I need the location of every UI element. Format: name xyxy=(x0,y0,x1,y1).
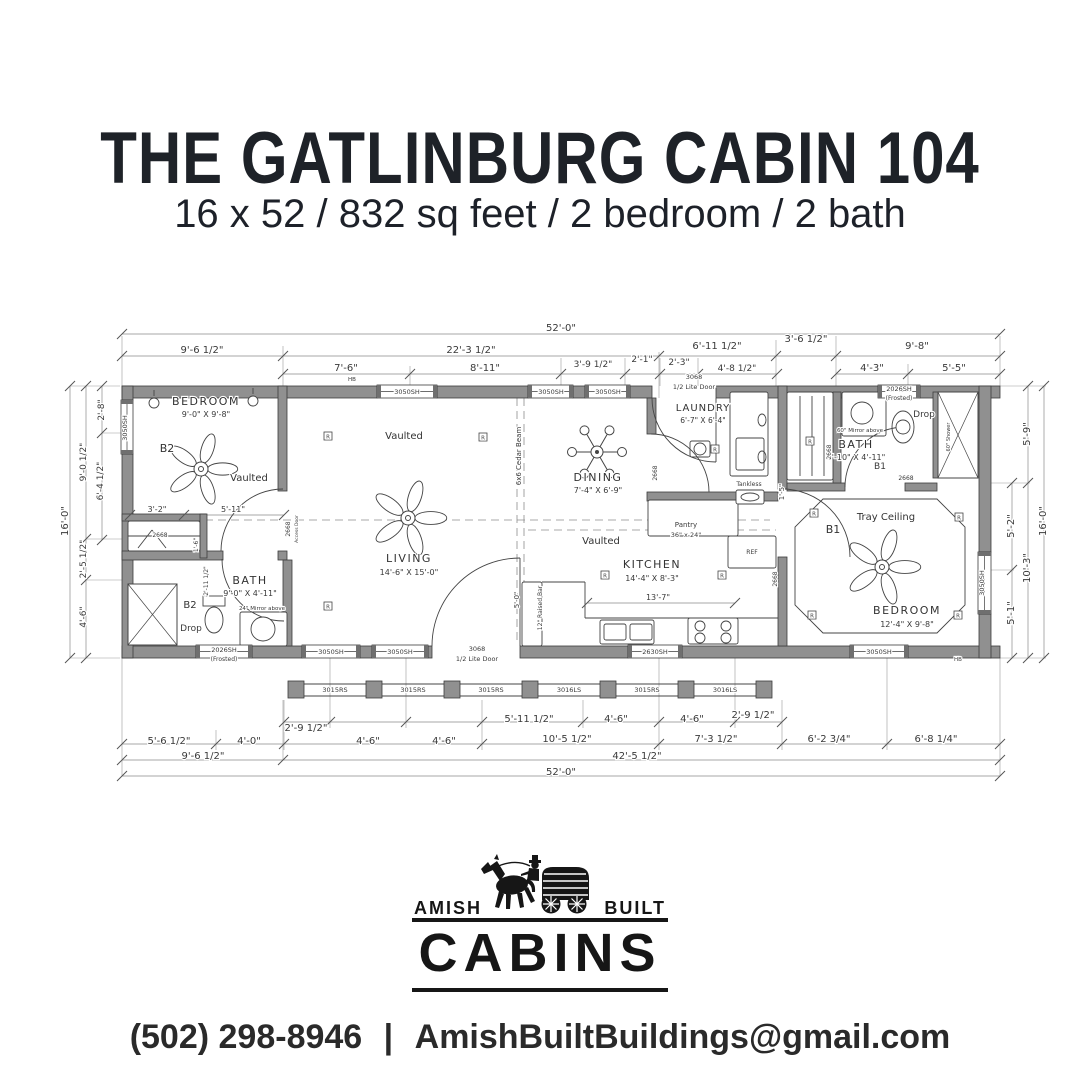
plan-label: 9'-0" X 9'-8" xyxy=(182,410,230,419)
logo-rule-bottom xyxy=(412,988,668,992)
plan-label: 2668 xyxy=(826,444,833,459)
plan-label: Pantry xyxy=(675,521,697,529)
fixture-circle xyxy=(851,402,873,424)
plan-label: 4'-0" xyxy=(237,736,261,747)
plan-label: 3050SH xyxy=(866,648,892,656)
plan-label: 4'-6" xyxy=(432,736,456,747)
plan-label: 6x6 Cedar Beam xyxy=(515,427,523,486)
plan-label: 1/2 Lite Door xyxy=(673,383,716,391)
wall xyxy=(520,646,628,658)
window-jamb xyxy=(628,645,632,658)
plan-label: 3050SH xyxy=(978,570,986,596)
page: THE GATLINBURG CABIN 104 16 x 52 / 832 s… xyxy=(0,0,1080,1080)
door-swing xyxy=(432,558,520,646)
plan-label: 52'-0" xyxy=(546,323,576,334)
plan-label: LAUNDRY xyxy=(676,403,731,414)
plan-label: 9'-0 1/2" xyxy=(79,443,89,482)
wall xyxy=(278,386,287,491)
plan-label: 2'-1" xyxy=(631,355,652,365)
window-jamb xyxy=(978,552,991,556)
plan-label: 5'-9" xyxy=(1022,422,1033,446)
plan-label: Drop xyxy=(913,410,935,420)
fixture xyxy=(736,438,764,470)
plan-label: 4'-6" xyxy=(79,606,89,627)
plan-label: 6'-2 3/4" xyxy=(808,734,851,745)
plan-label: 3015RS xyxy=(478,686,503,694)
plan-label: BATH xyxy=(232,574,267,587)
plan-label: 2'-8" xyxy=(97,399,107,420)
porch-post xyxy=(366,681,382,698)
plan-label: 3050SH xyxy=(121,415,129,441)
fixture-circle xyxy=(695,621,705,631)
plan-label: 2668 xyxy=(152,532,167,539)
fixture-circle xyxy=(721,621,731,631)
fixture-circle xyxy=(896,420,910,434)
plan-label: 2668 xyxy=(285,521,292,536)
window-jamb xyxy=(356,645,360,658)
plan-label: 5'-11" xyxy=(221,505,245,514)
logo-cabins: CABINS xyxy=(412,922,668,984)
plan-label: BATH xyxy=(838,438,873,451)
plan-label: 14'-4" X 8'-3" xyxy=(625,574,679,583)
plan-label: Vaulted xyxy=(230,473,268,484)
plan-label: 3068 xyxy=(469,645,486,653)
window-jamb xyxy=(377,385,381,398)
porch-post xyxy=(756,681,772,698)
plan-label: 16'-0" xyxy=(60,506,71,536)
toilet-bowl xyxy=(205,607,223,633)
logo-amish: AMISH xyxy=(414,898,482,919)
plan-label: 6'-11 1/2" xyxy=(692,341,741,352)
plan-label: B2 xyxy=(160,442,175,455)
window-jamb xyxy=(121,450,133,454)
plan-label: 3016LS xyxy=(713,686,737,694)
contact-phone: (502) 298-8946 xyxy=(130,1018,363,1056)
fixture-circle xyxy=(721,633,731,643)
plan-label: REF xyxy=(746,549,758,556)
plan-label: 7'-4" X 6'-9" xyxy=(574,486,622,495)
plan-label: 3'-6 1/2" xyxy=(785,334,828,345)
wall xyxy=(122,386,377,398)
plan-label: R xyxy=(326,434,330,440)
plan-label: B1 xyxy=(874,462,886,472)
plan-label: 22'-3 1/2" xyxy=(446,345,495,356)
fixture xyxy=(630,624,652,640)
plan-label: 2'-3" xyxy=(668,358,689,368)
plan-label: 3050SH xyxy=(538,388,564,396)
contact-line: (502) 298-8946 | AmishBuiltBuildings@gma… xyxy=(0,1018,1080,1057)
plan-label: 60" Mirror above xyxy=(837,428,884,434)
wall xyxy=(979,614,991,658)
plan-label: R xyxy=(957,515,961,521)
plan-label: 3068 xyxy=(686,373,703,381)
wall xyxy=(437,386,528,398)
wall xyxy=(252,646,302,658)
toilet-tank xyxy=(203,596,225,606)
plan-label: 6'-4 1/2" xyxy=(96,462,106,501)
plan-label: 3050SH xyxy=(595,388,621,396)
plan-label: B1 xyxy=(826,523,841,536)
plan-label: 24" Mirror above xyxy=(239,606,286,612)
window-jamb xyxy=(248,645,252,658)
plan-label: KITCHEN xyxy=(623,558,681,571)
plan-label: 3015RS xyxy=(400,686,425,694)
wall xyxy=(979,386,991,552)
plan-label: 3015RS xyxy=(322,686,347,694)
plan-label: BEDROOM xyxy=(873,604,941,617)
fixture-circle xyxy=(694,443,706,455)
plan-label: 2'-9 1/2" xyxy=(285,723,328,734)
plan-label: B2 xyxy=(183,600,196,611)
plan-label: 1'-6" xyxy=(193,538,200,552)
wall xyxy=(682,646,850,658)
plan-label: R xyxy=(808,439,812,445)
porch-post xyxy=(444,681,460,698)
plan-label: 6'-7" X 6'-4" xyxy=(680,416,725,425)
window-jamb xyxy=(196,645,200,658)
plan-label: 5'-11 1/2" xyxy=(504,714,553,725)
wall xyxy=(200,514,207,558)
window-jamb xyxy=(302,645,306,658)
plan-label: 3016LS xyxy=(557,686,581,694)
fixture-circle xyxy=(251,617,275,641)
plan-label: LIVING xyxy=(386,552,432,565)
ceiling-fan xyxy=(847,528,921,606)
wall xyxy=(905,483,937,491)
plan-label: 12" Raised Bar xyxy=(537,585,544,630)
wall xyxy=(428,646,432,658)
brand-logo: AMISH BUILT CABINS xyxy=(412,852,668,1012)
window-jamb xyxy=(904,645,908,658)
wall xyxy=(278,551,287,560)
plan-label: 36" x 24" xyxy=(671,531,702,539)
plan-label: 52'-0" xyxy=(546,767,576,778)
plan-label: BEDROOM xyxy=(172,395,240,408)
plan-label: 1/2 Lite Door xyxy=(456,655,499,663)
plan-label: 8'-11" xyxy=(470,363,500,374)
plan-label: 42'-5 1/2" xyxy=(612,751,661,762)
plan-label: 4'-6" xyxy=(356,736,380,747)
plan-label: 4'-3" xyxy=(860,363,884,374)
wall xyxy=(122,551,223,560)
wall xyxy=(787,483,845,491)
plan-label: 3050SH xyxy=(318,648,344,656)
plan-label: 9'-6 1/2" xyxy=(181,345,224,356)
porch-post xyxy=(288,681,304,698)
wall xyxy=(778,386,787,489)
plan-label: 2668 xyxy=(652,465,659,480)
window-jamb xyxy=(978,610,991,614)
logo-built: BUILT xyxy=(604,898,666,919)
plan-label: 8'-10" X 4'-11" xyxy=(827,453,886,462)
plan-label: R xyxy=(481,435,485,441)
plan-label: 5'-6 1/2" xyxy=(148,736,191,747)
plan-label: 2668 xyxy=(898,475,913,482)
plan-label: R xyxy=(720,573,724,579)
plan-label: 6'-8 1/4" xyxy=(915,734,958,745)
window-jamb xyxy=(916,385,920,398)
window-jamb xyxy=(878,385,882,398)
fixture-circle xyxy=(248,396,258,406)
fixture-circle xyxy=(695,633,705,643)
plan-label: 9'-6 1/2" xyxy=(182,751,225,762)
plan-label: 3050SH xyxy=(394,388,420,396)
horse-and-wagon-icon xyxy=(480,854,600,918)
plan-label: 3015RS xyxy=(634,686,659,694)
plan-label: 3'-2" xyxy=(148,505,167,514)
plan-label: Vaulted xyxy=(385,431,423,442)
plan-label: 2668 xyxy=(772,571,779,586)
plan-label: 4'-6" xyxy=(604,714,628,725)
plan-label: (Frosted) xyxy=(211,656,238,663)
wall xyxy=(122,514,206,521)
window-jamb xyxy=(678,645,682,658)
plan-label: Tray Ceiling xyxy=(856,512,915,523)
plan-label: 3'-9 1/2" xyxy=(574,360,613,370)
porch-post xyxy=(678,681,694,698)
plan-label: 9'-0" X 4'-11" xyxy=(223,589,277,598)
fixture-circle xyxy=(149,398,159,408)
plan-label: 10'-5 1/2" xyxy=(542,734,591,745)
porch-post xyxy=(600,681,616,698)
plan-label: R xyxy=(812,511,816,517)
ceiling-fan xyxy=(373,479,447,557)
window-jamb xyxy=(433,385,437,398)
ceiling-fan xyxy=(168,432,238,506)
wall xyxy=(360,646,372,658)
plan-label: 4'-6" xyxy=(680,714,704,725)
plan-label: 7'-3 1/2" xyxy=(695,734,738,745)
plan-label: 4'-8 1/2" xyxy=(718,364,757,374)
plan-label: 2630SH xyxy=(642,648,668,656)
plan-label: 5'-1" xyxy=(1006,601,1017,625)
plan-label: 2026SH xyxy=(211,646,237,654)
window-jamb xyxy=(626,385,630,398)
window-jamb xyxy=(424,645,428,658)
plan-label: 12'-4" X 9'-8" xyxy=(880,620,934,629)
plan-label: R xyxy=(810,613,814,619)
plan-label: 3050SH xyxy=(387,648,413,656)
plan-label: Vaulted xyxy=(582,536,620,547)
wall xyxy=(573,386,585,398)
fixture xyxy=(736,490,764,504)
plan-label: R xyxy=(326,604,330,610)
plan-label: HB xyxy=(348,377,356,383)
plan-label: (Frosted) xyxy=(886,395,913,402)
plan-label: 7'-6" xyxy=(334,363,358,374)
window-jamb xyxy=(585,385,589,398)
plan-label: R xyxy=(956,613,960,619)
contact-email: AmishBuiltBuildings@gmail.com xyxy=(415,1018,951,1056)
plan-label: 5'-5" xyxy=(942,363,966,374)
plan-label: R xyxy=(713,447,717,453)
plan-label: R xyxy=(603,573,607,579)
window-jamb xyxy=(528,385,532,398)
wall xyxy=(122,386,133,400)
plan-label: 2026SH xyxy=(886,385,912,393)
fixture xyxy=(604,624,626,640)
window-jamb xyxy=(121,400,133,404)
plan-label: Drop xyxy=(180,624,202,634)
plan-label: HB xyxy=(954,657,962,663)
wall xyxy=(630,386,652,398)
plan-label: 16'-0" xyxy=(1038,506,1049,536)
porch-post xyxy=(522,681,538,698)
plan-label: 10'-3" xyxy=(1022,553,1033,583)
wall xyxy=(778,557,787,646)
plan-label: Tankless xyxy=(735,481,761,488)
window-jamb xyxy=(569,385,573,398)
plan-label: 9'-8" xyxy=(905,341,929,352)
plan-label: 1'-5" xyxy=(778,484,786,501)
plan-label: 13'-7" xyxy=(646,593,670,602)
window-jamb xyxy=(850,645,854,658)
plan-label: DINING xyxy=(574,471,623,484)
window-jamb xyxy=(372,645,376,658)
plan-label: 5'-0" xyxy=(513,592,521,609)
plan-label: 14'-6" X 15'-0" xyxy=(380,568,439,577)
plan-label: 60" Shower xyxy=(946,422,952,452)
plan-label: 2'-11 1/2" xyxy=(203,566,210,596)
fixture xyxy=(787,392,833,480)
plan-label: 5'-2" xyxy=(1006,514,1017,538)
plan-label: 2'-9 1/2" xyxy=(732,710,775,721)
contact-separator: | xyxy=(384,1018,394,1056)
plan-label: Access Door xyxy=(294,515,300,543)
plan-label: 2'-5 1/2" xyxy=(79,540,89,579)
